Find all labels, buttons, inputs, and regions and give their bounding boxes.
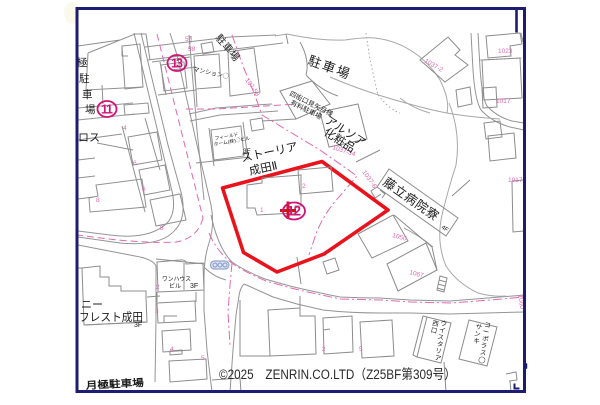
svg-text:ニー: ニー: [81, 299, 103, 311]
svg-text:11: 11: [101, 103, 113, 117]
svg-text:13: 13: [171, 57, 183, 71]
svg-text:5: 5: [359, 346, 363, 353]
svg-text:2: 2: [302, 183, 306, 190]
svg-text:シ: シ: [188, 45, 192, 50]
svg-text:4: 4: [123, 125, 127, 132]
svg-text:ロス: ロス: [78, 132, 100, 144]
svg-text:3F: 3F: [190, 283, 198, 290]
svg-text:4: 4: [170, 346, 174, 353]
svg-text:2: 2: [322, 346, 326, 353]
svg-text:ビル: ビル: [169, 282, 181, 290]
svg-text:ワンハウス: ワンハウス: [162, 275, 191, 283]
svg-text:3F: 3F: [134, 322, 142, 329]
svg-text:8: 8: [96, 197, 100, 204]
svg-text:12: 12: [287, 204, 301, 219]
svg-text:3F: 3F: [243, 148, 251, 155]
svg-text:8: 8: [160, 225, 164, 232]
svg-text:1: 1: [260, 207, 264, 214]
svg-text:1017: 1017: [508, 177, 523, 184]
svg-text:2: 2: [156, 284, 160, 291]
svg-text:3: 3: [155, 308, 159, 315]
svg-text:6: 6: [142, 186, 146, 193]
svg-text:5: 5: [201, 355, 205, 362]
svg-text:©2025 ZENRIN.CO.LTD（Z25BF第309号: ©2025 ZENRIN.CO.LTD（Z25BF第309号）: [219, 366, 456, 382]
svg-text:1017: 1017: [496, 98, 511, 105]
svg-text:1023: 1023: [498, 48, 513, 55]
svg-text:6: 6: [133, 160, 137, 167]
